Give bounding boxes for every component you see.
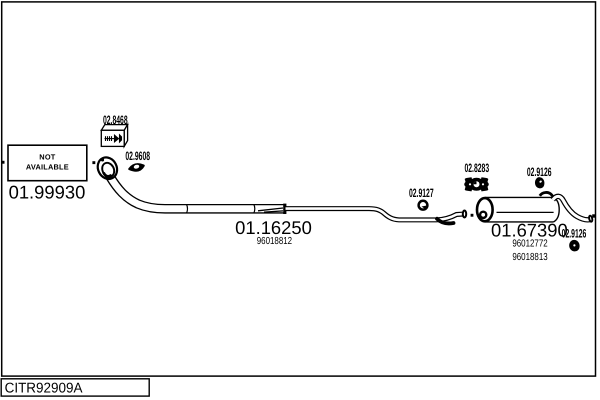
- svg-text:CITR92909A: CITR92909A: [5, 381, 83, 397]
- svg-text:01.67390: 01.67390: [491, 220, 568, 241]
- svg-text:96018812: 96018812: [257, 236, 293, 247]
- svg-text:96012772: 96012772: [512, 239, 548, 250]
- svg-text:02.9126: 02.9126: [527, 165, 552, 179]
- svg-text:01.99930: 01.99930: [9, 182, 86, 203]
- svg-text:02.9608: 02.9608: [125, 149, 150, 163]
- svg-text:01.16250: 01.16250: [235, 217, 312, 238]
- svg-text:96018813: 96018813: [512, 252, 548, 263]
- svg-text:NOT: NOT: [39, 153, 55, 162]
- svg-text:02.9127: 02.9127: [409, 186, 434, 200]
- svg-text:AVAILABLE: AVAILABLE: [26, 162, 69, 171]
- svg-text:02.9126: 02.9126: [562, 227, 587, 241]
- svg-text:02.8283: 02.8283: [464, 161, 489, 175]
